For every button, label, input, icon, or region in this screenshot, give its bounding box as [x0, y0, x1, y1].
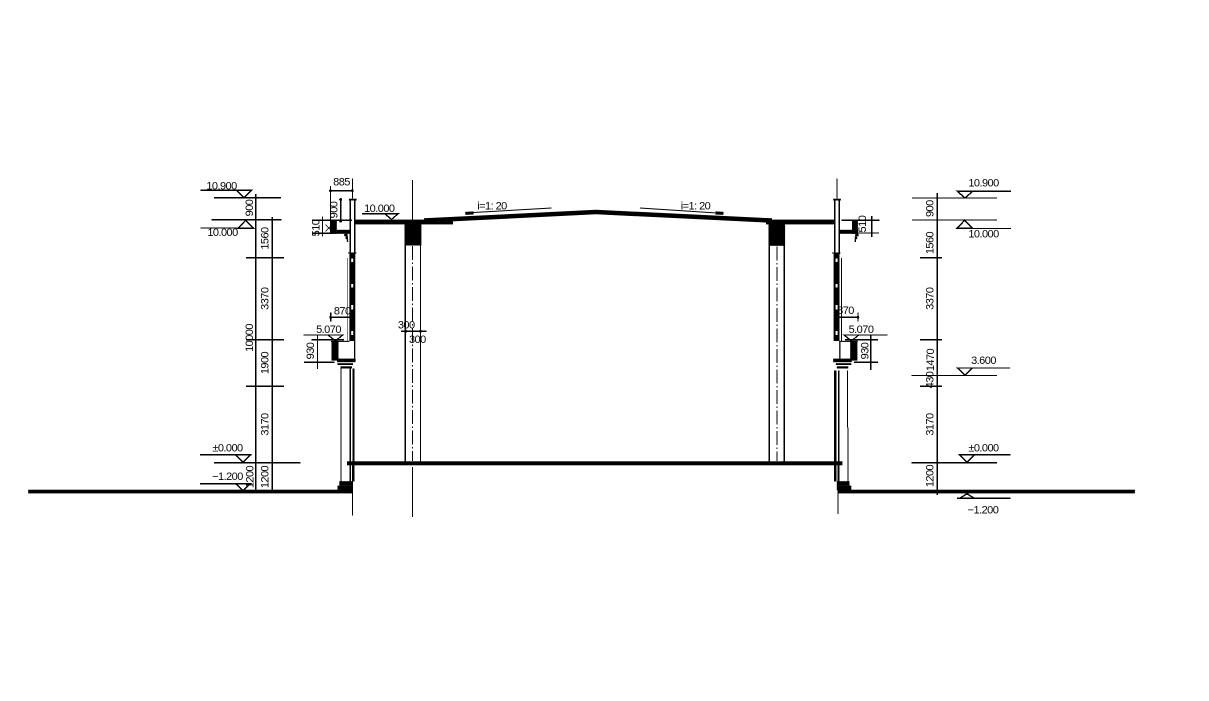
- svg-text:870: 870: [837, 305, 854, 317]
- svg-text:3370: 3370: [259, 287, 271, 310]
- svg-text:5.070: 5.070: [316, 324, 341, 336]
- svg-text:5.070: 5.070: [849, 324, 874, 336]
- svg-text:900: 900: [924, 200, 936, 217]
- svg-text:i=1: 20: i=1: 20: [477, 200, 507, 212]
- svg-text:10.900: 10.900: [206, 180, 237, 192]
- svg-text:1560: 1560: [259, 227, 271, 250]
- svg-text:510: 510: [310, 219, 322, 236]
- svg-text:900: 900: [244, 199, 256, 216]
- svg-text:3.600: 3.600: [971, 355, 996, 367]
- svg-text:930: 930: [859, 342, 871, 359]
- svg-text:10.000: 10.000: [364, 203, 395, 215]
- svg-text:10.900: 10.900: [968, 178, 999, 190]
- svg-text:3170: 3170: [259, 413, 271, 436]
- svg-text:10.000: 10.000: [207, 227, 238, 239]
- svg-text:300: 300: [398, 319, 415, 331]
- svg-text:1560: 1560: [924, 231, 936, 254]
- svg-text:1200: 1200: [259, 465, 271, 488]
- svg-text:1200: 1200: [925, 464, 937, 487]
- svg-text:1900: 1900: [259, 351, 271, 374]
- svg-text:10.000: 10.000: [968, 228, 999, 240]
- svg-text:3370: 3370: [924, 287, 936, 310]
- svg-text:1200: 1200: [245, 465, 257, 488]
- svg-text:885: 885: [333, 176, 350, 188]
- svg-text:300: 300: [409, 334, 426, 346]
- svg-text:510: 510: [857, 215, 869, 232]
- svg-text:870: 870: [334, 305, 351, 317]
- svg-text:−1.200: −1.200: [968, 505, 999, 517]
- svg-text:±0.000: ±0.000: [968, 443, 999, 455]
- svg-text:900: 900: [329, 201, 341, 218]
- svg-text:930: 930: [305, 342, 317, 359]
- svg-text:10000: 10000: [244, 324, 256, 352]
- svg-text:±0.000: ±0.000: [212, 442, 243, 454]
- svg-text:i=1: 20: i=1: 20: [681, 200, 711, 212]
- svg-text:3170: 3170: [924, 413, 936, 436]
- svg-text:−1.200: −1.200: [212, 471, 243, 483]
- svg-text:430: 430: [925, 371, 937, 388]
- svg-text:1470: 1470: [925, 348, 937, 371]
